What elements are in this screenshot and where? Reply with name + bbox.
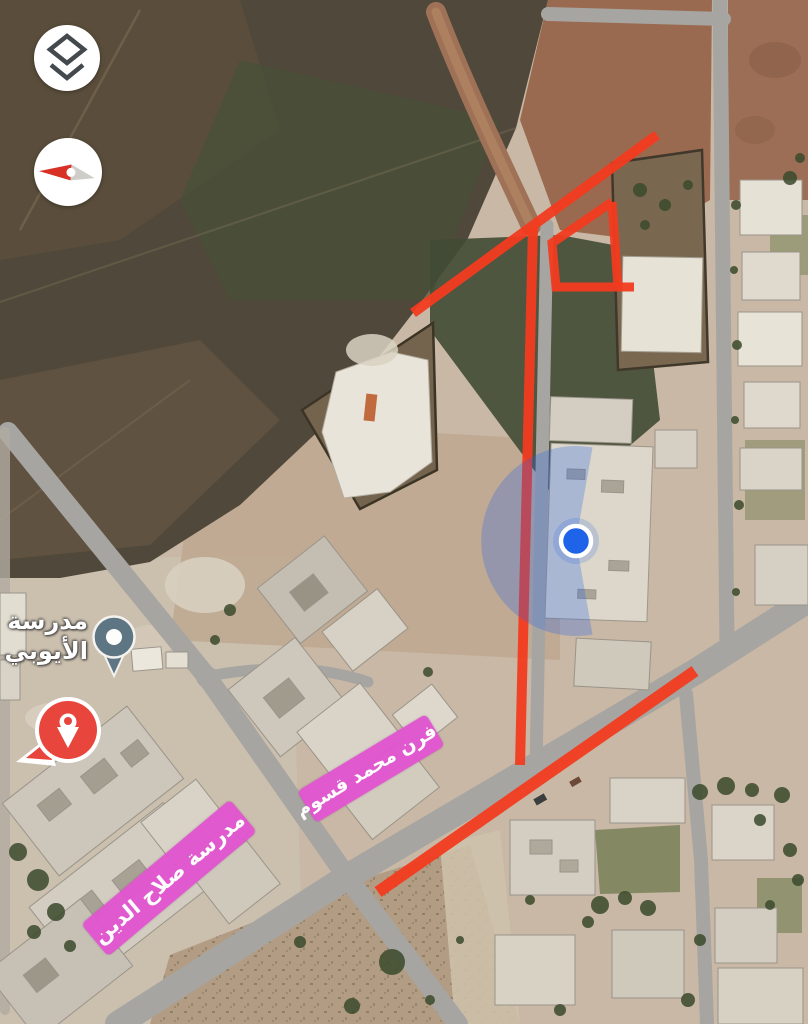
satellite-map[interactable]: مدرسة الأيوبي فرن محمد قسوم مدرسة صلاح ا… [0, 0, 808, 1024]
school-poi-label: مدرسة الأيوبي [0, 606, 88, 666]
layers-icon [44, 33, 90, 83]
compass-button[interactable] [34, 138, 102, 206]
school-poi-label-line1: مدرسة [0, 606, 88, 636]
route-parcel-edge [612, 202, 618, 287]
school-poi-label-line2: الأيوبي [0, 636, 88, 666]
compass-needle-icon [37, 154, 99, 190]
layers-button[interactable] [34, 25, 100, 91]
map-imagery [0, 0, 808, 1024]
